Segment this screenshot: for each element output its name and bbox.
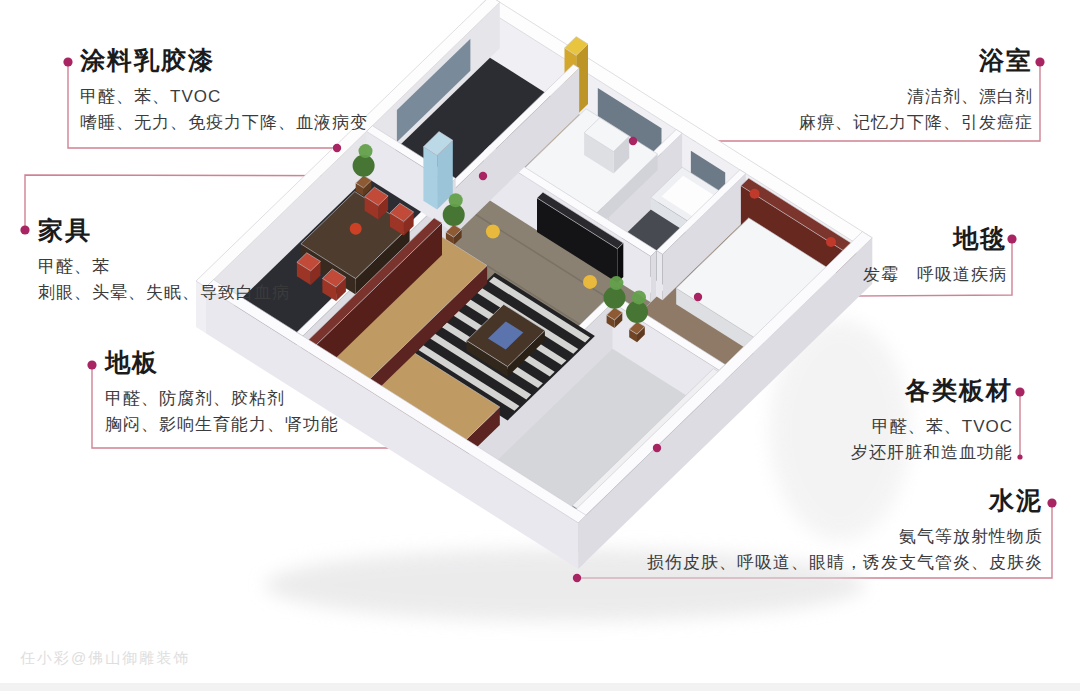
callout-bathroom: 浴室 清洁剂、漂白剂 麻痹、记忆力下降、引发癌症 [799, 44, 1033, 136]
callout-bathroom-title: 浴室 [799, 44, 1033, 77]
callout-boards: 各类板材 甲醛、苯、TVOC 岁还肝脏和造血功能 [851, 374, 1013, 466]
boards-dot-start [1015, 387, 1024, 396]
callout-bathroom-line-2: 麻痹、记忆力下降、引发癌症 [799, 110, 1033, 136]
callout-cement-line-2: 损伤皮肤、呼吸道、眼睛，诱发支气管炎、皮肤炎 [647, 550, 1043, 576]
callout-carpet-line-1: 发霉 呼吸道疾病 [863, 262, 1007, 288]
callout-furniture-line-1: 甲醛、苯 [38, 254, 290, 280]
paint-dot-start [63, 57, 72, 66]
callout-boards-title: 各类板材 [851, 374, 1013, 407]
furniture-dot-end [479, 172, 487, 180]
callout-boards-line-1: 甲醛、苯、TVOC [851, 414, 1013, 440]
callout-furniture-line-2: 刺眼、头晕、失眠、导致白血病 [38, 280, 290, 306]
infographic-canvas: 涂料乳胶漆 甲醛、苯、TVOC 嗜睡、无力、免疫力下降、血液病变 家具 甲醛、苯… [0, 0, 1080, 691]
callout-cement-line-1: 氨气等放射性物质 [647, 524, 1043, 550]
callout-paint-title: 涂料乳胶漆 [80, 44, 368, 77]
callout-floor-title: 地板 [105, 346, 339, 379]
callout-carpet: 地毯 发霉 呼吸道疾病 [863, 222, 1007, 288]
paint-dot-end [333, 144, 341, 152]
bathroom-dot-end [629, 137, 637, 145]
watermark-text: 任小彩@佛山御雕装饰 [20, 649, 190, 668]
callout-carpet-title: 地毯 [863, 222, 1007, 255]
cement-dot-end [573, 574, 581, 582]
bottom-strip [0, 683, 1080, 691]
callout-bathroom-line-1: 清洁剂、漂白剂 [799, 84, 1033, 110]
callout-paint-line-2: 嗜睡、无力、免疫力下降、血液病变 [80, 110, 368, 136]
callout-cement: 水泥 氨气等放射性物质 损伤皮肤、呼吸道、眼睛，诱发支气管炎、皮肤炎 [647, 484, 1043, 576]
callout-floor: 地板 甲醛、防腐剂、胶粘剂 胸闷、影响生育能力、肾功能 [105, 346, 339, 438]
cement-dot-start [1047, 498, 1056, 507]
callout-furniture: 家具 甲醛、苯 刺眼、头晕、失眠、导致白血病 [38, 214, 290, 306]
carpet-dot-end [694, 293, 702, 301]
callout-floor-line-2: 胸闷、影响生育能力、肾功能 [105, 412, 339, 438]
bathroom-dot-start [1035, 57, 1044, 66]
furniture-dot-start [20, 225, 29, 234]
floor-dot-start [87, 360, 96, 369]
callout-furniture-title: 家具 [38, 214, 290, 247]
carpet-dot-start [1007, 234, 1016, 243]
callout-floor-line-1: 甲醛、防腐剂、胶粘剂 [105, 386, 339, 412]
callout-paint: 涂料乳胶漆 甲醛、苯、TVOC 嗜睡、无力、免疫力下降、血液病变 [80, 44, 368, 136]
boards-dot-end [1017, 454, 1022, 459]
callout-cement-title: 水泥 [647, 484, 1043, 517]
floor-dot-end [653, 444, 661, 452]
callout-paint-line-1: 甲醛、苯、TVOC [80, 84, 368, 110]
callout-boards-line-2: 岁还肝脏和造血功能 [851, 440, 1013, 466]
